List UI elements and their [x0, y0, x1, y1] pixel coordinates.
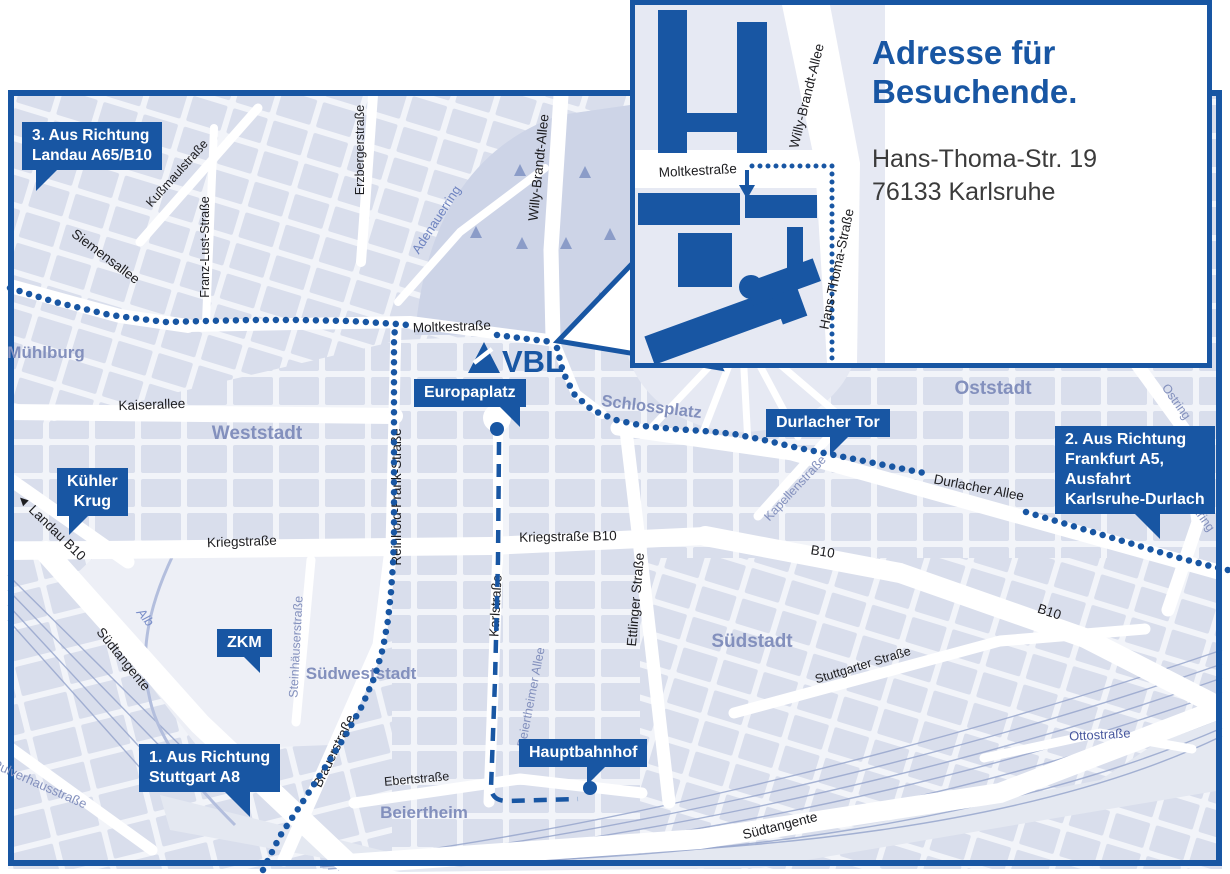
street-moltkestrasse: Moltkestraße — [413, 318, 492, 336]
street-kaiserallee: Kaiserallee — [118, 396, 185, 413]
street-kriegstrasse: Kriegstraße — [207, 533, 277, 550]
inset-title-line: Adresse für — [872, 33, 1077, 72]
street-franz-lust-strasse: Franz-Lust-Straße — [198, 196, 212, 297]
street-reinhold-frank-strasse: Reinhold-Frank-Straße — [389, 428, 404, 565]
callout-zkm: ZKM — [217, 629, 272, 657]
callout-tail — [36, 169, 58, 191]
callout-route-frankfurt: 2. Aus Richtung Frankfurt A5, Ausfahrt K… — [1055, 426, 1215, 514]
callout-line: Landau A65/B10 — [32, 146, 152, 166]
callout-tail — [499, 406, 520, 427]
area-muehlburg: Mühlburg — [7, 343, 84, 362]
callout-line: Hauptbahnhof — [529, 744, 637, 761]
callout-route-landau: 3. Aus Richtung Landau A65/B10 — [22, 122, 162, 170]
callout-kuehler-krug: Kühler Krug — [57, 468, 128, 516]
callout-tail — [69, 515, 89, 535]
callout-tail — [1134, 513, 1160, 539]
callout-line: 1. Aus Richtung — [149, 748, 270, 768]
address-inset-panel: Moltkestraße Willy-Brandt-Allee Hans-Tho… — [630, 0, 1212, 368]
callout-line: 3. Aus Richtung — [32, 126, 152, 146]
callout-tail — [587, 766, 606, 785]
vbl-logo-text: VBL — [502, 344, 564, 379]
callout-route-stuttgart: 1. Aus Richtung Stuttgart A8 — [139, 744, 280, 792]
area-beiertheim: Beiertheim — [380, 803, 468, 822]
callout-tail — [224, 791, 250, 817]
callout-line: Frankfurt A5, — [1065, 450, 1205, 470]
street-kriegstrasse-b10: Kriegstraße B10 — [519, 528, 617, 545]
callout-line: Kühler — [67, 472, 118, 492]
area-weststadt: Weststadt — [212, 423, 303, 444]
inset-title-line: Besuchende. — [872, 72, 1077, 111]
callout-tail — [830, 436, 849, 455]
visitor-address: Hans-Thoma-Str. 19 76133 Karlsruhe — [872, 143, 1097, 209]
area-suedweststadt: Südweststadt — [306, 664, 417, 683]
callout-durlacher-tor: Durlacher Tor — [766, 409, 890, 437]
callout-tail — [243, 656, 260, 673]
callout-line: Stuttgart A8 — [149, 768, 270, 788]
callout-line: Ausfahrt — [1065, 470, 1205, 490]
callout-line: Karlsruhe-Durlach — [1065, 490, 1205, 510]
callout-line: Krug — [67, 492, 118, 512]
callout-hauptbahnhof: Hauptbahnhof — [519, 739, 647, 767]
street-erzbergerstrasse: Erzbergerstraße — [353, 105, 367, 195]
callout-line: Europaplatz — [424, 384, 516, 401]
callout-europaplatz: Europaplatz — [414, 379, 526, 407]
vbl-arrival-map: Mühlburg Weststadt Oststadt Schlossplatz… — [0, 0, 1230, 874]
address-street: Hans-Thoma-Str. 19 — [872, 143, 1097, 176]
area-suedstadt: Südstadt — [711, 631, 793, 652]
callout-line: Durlacher Tor — [776, 414, 880, 431]
street-ottostrasse: Ottostraße — [1069, 725, 1131, 743]
inset-title: Adresse für Besuchende. — [872, 33, 1077, 111]
area-oststadt: Oststadt — [954, 378, 1032, 399]
address-city: 76133 Karlsruhe — [872, 176, 1097, 209]
callout-line: ZKM — [227, 634, 262, 651]
callout-line: 2. Aus Richtung — [1065, 430, 1205, 450]
